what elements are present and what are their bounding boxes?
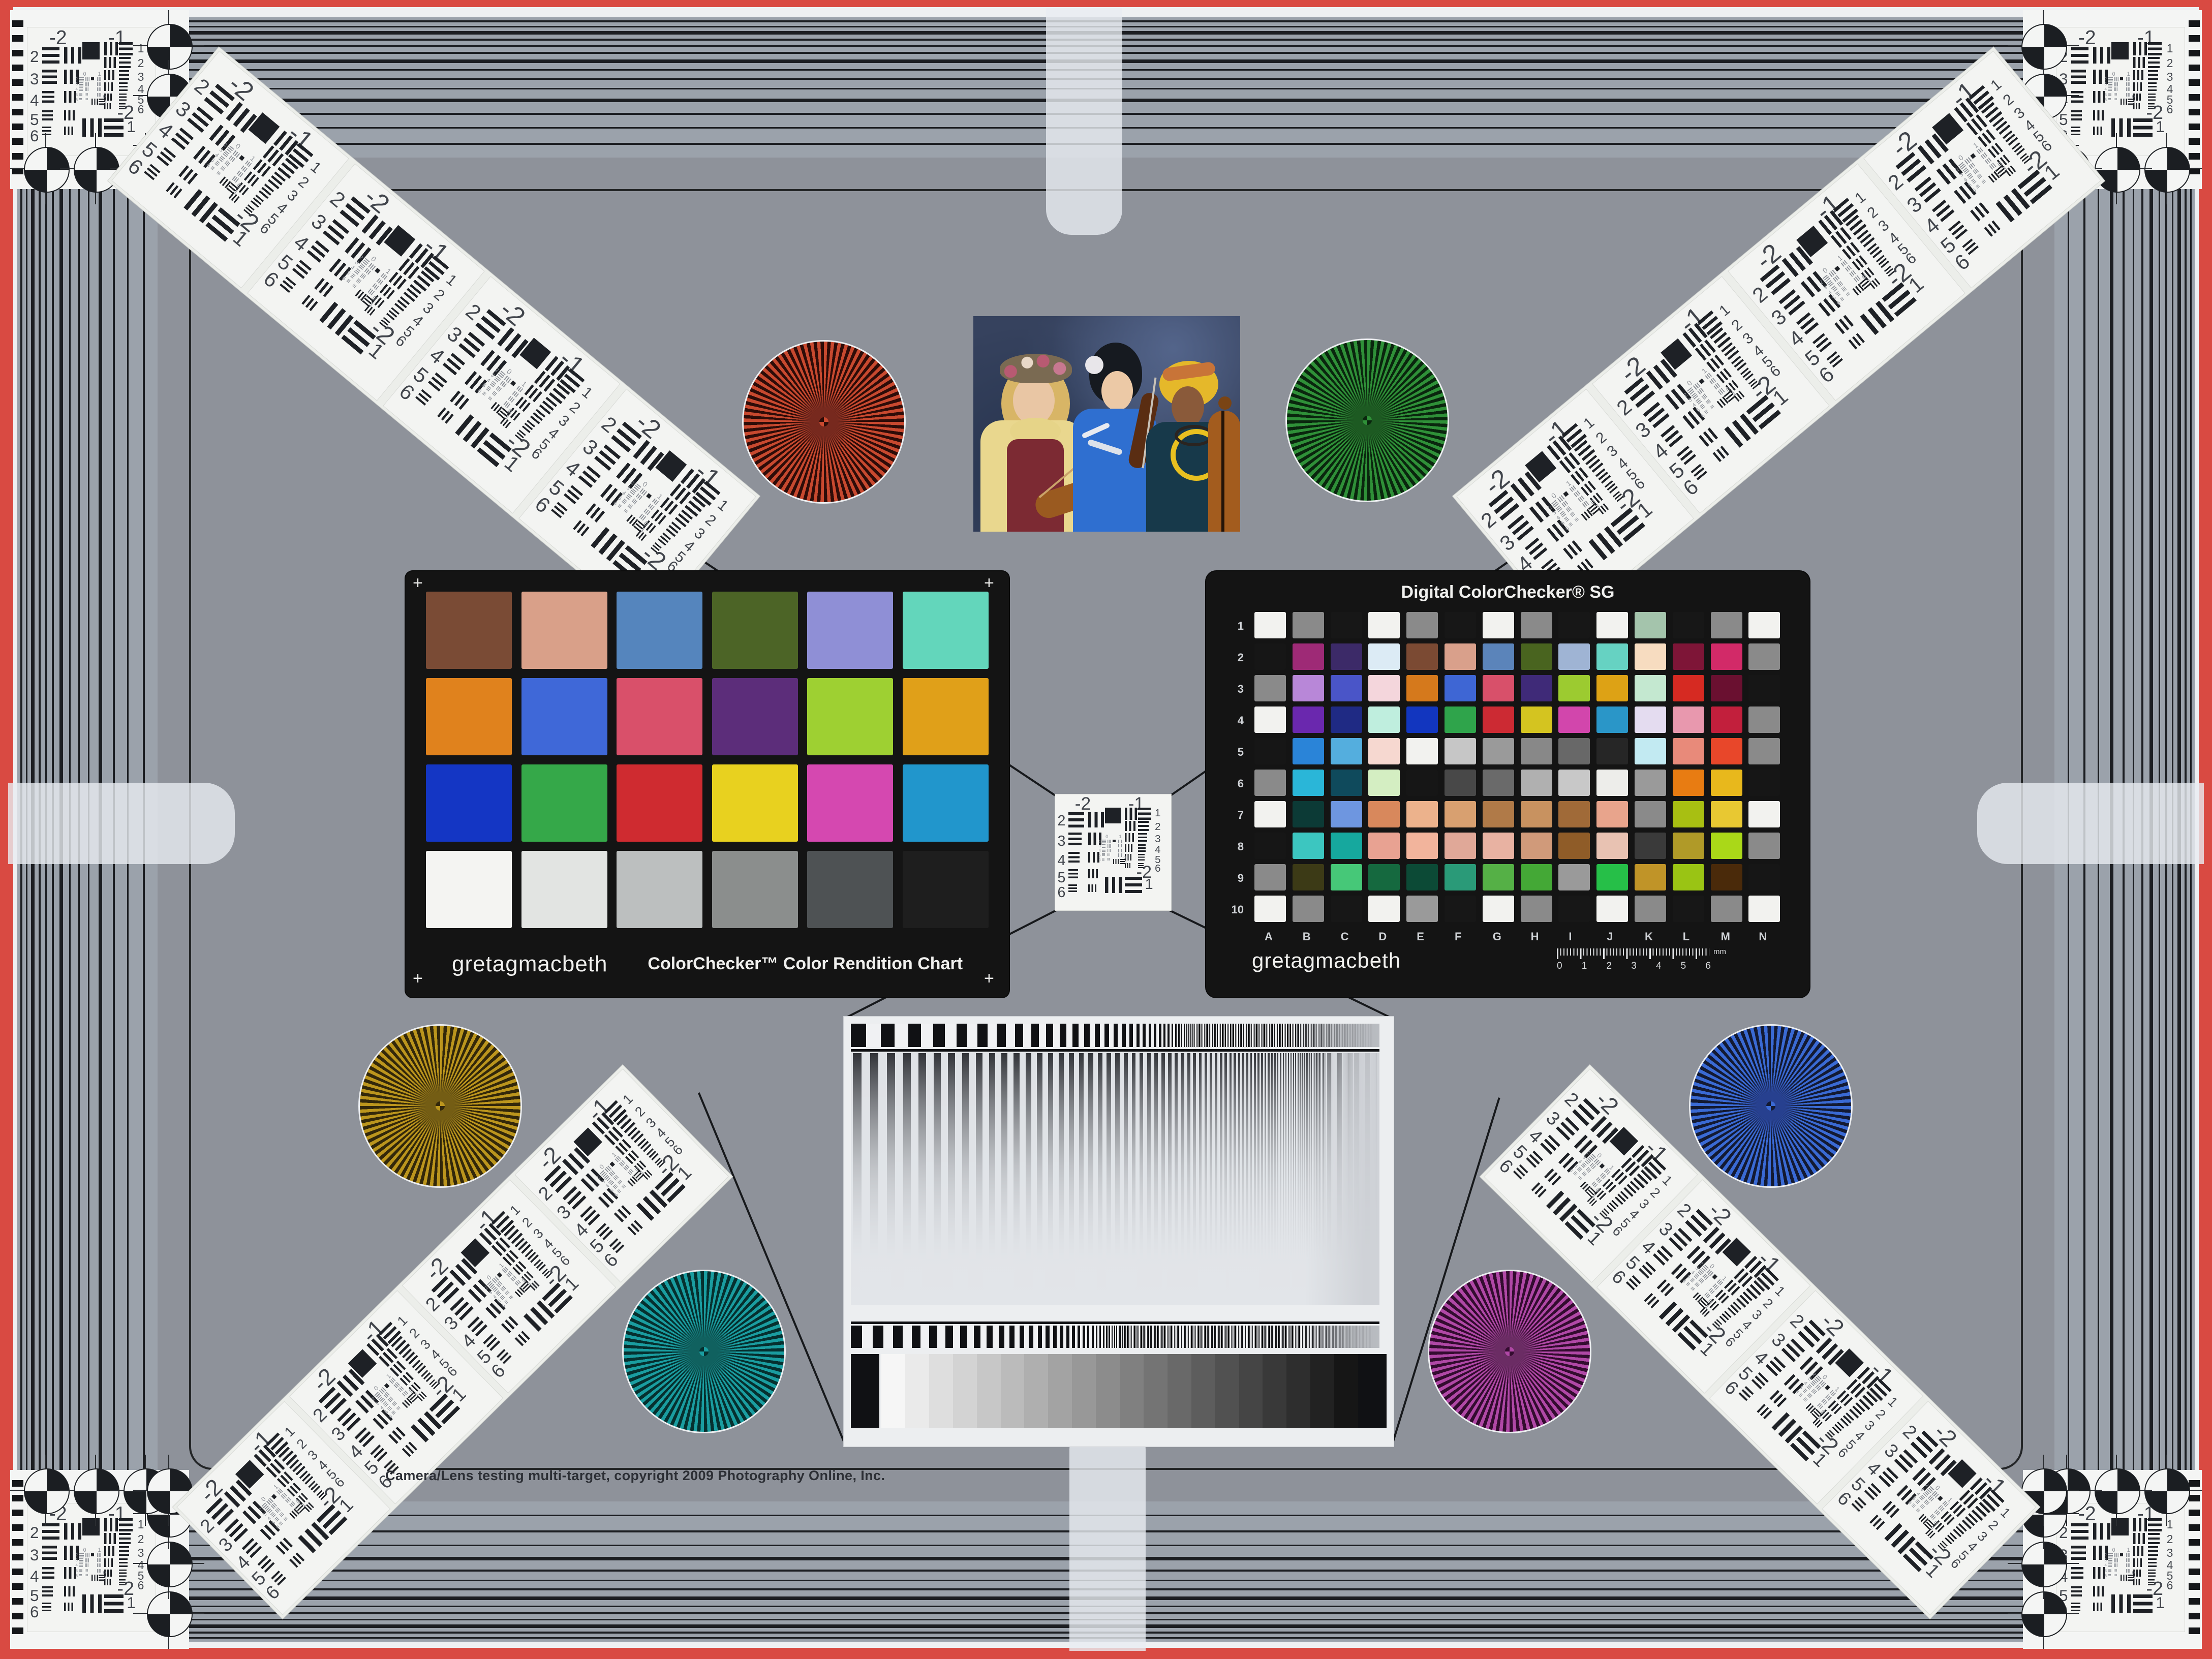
usaf-vbars [1562, 540, 1582, 560]
usaf-micro-vbars [1836, 281, 1842, 287]
color-patch [1445, 612, 1476, 638]
usaf-micro-hbars [1915, 1499, 1920, 1504]
usaf-micro-hbars [1839, 297, 1844, 301]
usaf-vbars [1698, 427, 1717, 447]
usaf-vbars [2121, 1575, 2127, 1581]
color-patch [1521, 738, 1552, 764]
sweep-target-card [844, 1017, 1394, 1447]
usaf-vbars [502, 1250, 518, 1266]
usaf-number: 1 [2133, 100, 2136, 105]
usaf-hbars [2148, 70, 2158, 80]
sweep-bar [1276, 1326, 1277, 1348]
sweep-bar [1170, 1326, 1170, 1348]
usaf-vbars [1558, 1152, 1579, 1173]
sg-row-label: 8 [1221, 840, 1244, 853]
usaf-number: 0 [234, 142, 241, 150]
usaf-micro-hbars [2108, 87, 2112, 91]
usaf-vbars [2111, 118, 2131, 137]
usaf-hbars [483, 1334, 500, 1351]
usaf-micro-square [384, 1383, 389, 1388]
usaf-vbars [660, 497, 678, 515]
color-patch [1445, 864, 1476, 890]
color-patch [1445, 675, 1476, 701]
sweep-bar [1207, 1024, 1208, 1047]
color-patch [1558, 770, 1590, 796]
figure-left-vest [1007, 439, 1064, 532]
sweep-bar [1231, 1326, 1232, 1348]
sweep-bar [1251, 1024, 1252, 1047]
usaf-micro-vbars [2114, 1574, 2116, 1577]
usaf-vbars [573, 520, 589, 536]
color-patch [1254, 864, 1286, 890]
sweep-bar [1263, 1024, 1264, 1047]
sweep-bar [1147, 1326, 1148, 1348]
gray-step [1024, 1354, 1048, 1428]
usaf-vbars [373, 1409, 393, 1429]
usaf-hbars [1138, 808, 1151, 819]
sweep-bar [1181, 1024, 1183, 1047]
usaf-number: 1 [127, 1595, 136, 1611]
sweep-bar [1271, 1024, 1272, 1047]
color-patch [1293, 643, 1324, 670]
usaf-number: 0 [260, 1496, 267, 1503]
usaf-micro-vbars [1821, 1399, 1827, 1405]
usaf-micro-vbars [1570, 512, 1575, 517]
color-patch [1596, 770, 1628, 796]
usaf-vbars [82, 118, 102, 137]
color-patch [1673, 706, 1704, 733]
sweep-bar [1295, 1326, 1296, 1348]
sg-col-label: C [1341, 930, 1349, 943]
usaf-micro-vbars [631, 498, 637, 504]
usaf-number: 3 [218, 147, 224, 153]
sweep-bar [881, 1024, 895, 1047]
usaf-micro-hbars [1695, 398, 1701, 405]
usaf-micro-vbars [1600, 1173, 1606, 1179]
usaf-micro-vbars [279, 1512, 284, 1517]
usaf-micro-vbars [232, 176, 239, 182]
sweep-bar [1205, 1326, 1206, 1348]
quadrant-circle [2021, 1591, 2067, 1637]
sweep-bar [1134, 1326, 1134, 1348]
usaf-number: 2 [519, 1215, 534, 1230]
sweep-divider-bottom [851, 1322, 1379, 1324]
sweep-bar [1268, 1326, 1269, 1348]
sweep-bar [1228, 1326, 1228, 1348]
usaf-number: 1 [2156, 119, 2165, 135]
usaf-number: 6 [1723, 1335, 1737, 1349]
edge-tick-ruler [2189, 1480, 2200, 1639]
usaf-number: 6 [1721, 1377, 1742, 1398]
sweep-bar [1235, 1326, 1236, 1348]
usaf-hbars [258, 183, 274, 199]
usaf-vbars [91, 99, 98, 105]
usaf-number: 3 [76, 1558, 78, 1562]
usaf-number: 4 [1691, 403, 1697, 409]
usaf-number: 5 [2105, 93, 2107, 97]
sweep-bar [1153, 1326, 1153, 1348]
usaf-number: 4 [30, 1569, 39, 1585]
color-patch [1711, 738, 1742, 764]
sweep-bar [1222, 1326, 1223, 1348]
color-patch [1596, 675, 1628, 701]
usaf-micro-hbars [266, 1508, 272, 1514]
usaf-number: 6 [395, 381, 418, 404]
usaf-micro-vbars [623, 1164, 629, 1171]
color-patch [1558, 675, 1590, 701]
usaf-micro-vbars [1968, 163, 1975, 170]
usaf-vbars [1848, 333, 1864, 349]
sweep-bar [1299, 1326, 1300, 1348]
usaf-vbars [1706, 354, 1724, 373]
usaf-number: 5 [1058, 871, 1066, 885]
usaf-vbars [1896, 1485, 1917, 1505]
color-patch [1521, 675, 1552, 701]
sweep-bar [1143, 1326, 1143, 1348]
usaf-hbars [1796, 313, 1819, 335]
usaf-micro-hbars [218, 156, 224, 162]
sweep-bar [1109, 1326, 1110, 1348]
usaf-hbars [539, 396, 557, 415]
usaf-vbars [276, 1471, 293, 1488]
usaf-micro-hbars [1967, 173, 1973, 179]
usaf-number: 1 [1852, 189, 1868, 206]
usaf-vbars [1977, 129, 1995, 147]
usaf-square [82, 1518, 100, 1535]
usaf-vbars [104, 1533, 116, 1544]
usaf-micro-vbars [220, 166, 226, 171]
sweep-bar [1104, 1024, 1109, 1047]
usaf-micro-hbars [1577, 1166, 1582, 1172]
usaf-micro-hbars [1798, 1393, 1802, 1397]
color-patch [807, 851, 893, 928]
usaf-hbars [1513, 1164, 1528, 1179]
usaf-number: 6 [1610, 1224, 1624, 1239]
usaf-number: 5 [2059, 112, 2068, 128]
usaf-hbars [2148, 1558, 2157, 1566]
usaf-number: 6 [2105, 1574, 2107, 1578]
usaf-number: 6 [2105, 98, 2107, 102]
usaf-hbars [42, 91, 54, 103]
usaf-vbars [2133, 70, 2143, 80]
usaf-micro-vbars [85, 87, 88, 91]
color-patch [1521, 864, 1552, 890]
usaf-number: 2 [702, 512, 719, 529]
sweep-bar [1232, 1024, 1233, 1047]
usaf-number: 3 [354, 260, 359, 266]
usaf-vbars [515, 396, 531, 412]
color-patch [903, 678, 989, 755]
sweep-bar [1160, 1326, 1160, 1348]
usaf-micro-hbars [1559, 511, 1565, 517]
usaf-micro-vbars [387, 1396, 393, 1402]
usaf-micro-vbars [1815, 1385, 1821, 1391]
sweep-bar [1207, 1326, 1207, 1348]
usaf-hbars [1540, 1134, 1560, 1155]
usaf-hbars [1781, 1338, 1805, 1362]
sweep-bar [1282, 1024, 1283, 1047]
usaf-number: 2 [2167, 57, 2173, 69]
usaf-micro-vbars [1803, 1397, 1807, 1401]
usaf-micro-hbars [354, 268, 360, 274]
usaf-vbars [402, 1442, 417, 1457]
color-patch [1406, 643, 1438, 670]
usaf-number: 1 [282, 1424, 296, 1439]
usaf-micro-vbars [97, 93, 101, 97]
sweep-bar [1258, 1326, 1258, 1348]
usaf-vbars [613, 1205, 631, 1222]
sg-col-label: D [1378, 930, 1387, 943]
usaf-hbars [665, 521, 681, 537]
green-star [1285, 339, 1449, 502]
usaf-micro-vbars [1980, 152, 1987, 159]
usaf-hbars [1691, 464, 1707, 480]
color-patch [1748, 770, 1780, 796]
usaf-hbars [497, 1349, 511, 1364]
usaf-number: 3 [76, 82, 78, 86]
usaf-vbars [1088, 812, 1104, 827]
usaf-micro-vbars [1108, 858, 1110, 860]
color-patch [1483, 833, 1514, 859]
ruler-number: 3 [1631, 961, 1637, 972]
usaf-micro-hbars [608, 1180, 613, 1185]
usaf-micro-square [609, 1161, 615, 1166]
necklace-beads [1175, 425, 1213, 446]
sg-col-label: H [1531, 930, 1539, 943]
sweep-bar [1159, 1024, 1161, 1047]
usaf-number: 0 [83, 72, 86, 77]
cello-scroll [1218, 396, 1232, 410]
usaf-number: 1 [715, 497, 731, 514]
usaf-number: 3 [2105, 82, 2107, 86]
sweep-bar [1233, 1326, 1233, 1348]
color-patch [521, 678, 607, 755]
usaf-hbars [1856, 229, 1875, 248]
usaf-hbars [394, 296, 410, 312]
usaf-micro-vbars [85, 1563, 88, 1567]
sweep-bar [1277, 1024, 1278, 1047]
sweep-bar [1259, 1024, 1261, 1047]
sweep-bar [1284, 1024, 1285, 1047]
color-patch [1635, 896, 1666, 922]
usaf-micro-vbars [1972, 168, 1978, 174]
usaf-micro-vbars [639, 513, 646, 520]
color-patch [1254, 770, 1286, 796]
camera-test-chart: -2-123456123456-21012345601-2-1234561234… [0, 0, 2212, 1659]
ruler-number: 4 [1656, 961, 1662, 972]
usaf-hbars [187, 106, 213, 133]
usaf-hbars [257, 1555, 274, 1573]
color-patch [1635, 738, 1666, 764]
sweep-bar [1157, 1326, 1157, 1348]
usaf-vbars [329, 259, 351, 281]
usaf-vbars [104, 70, 114, 80]
usaf-micro-vbars [367, 288, 375, 295]
sweep-bar [1119, 1326, 1120, 1348]
usaf-micro-hbars [79, 1569, 82, 1572]
usaf-vbars [82, 1594, 102, 1613]
usaf-micro-vbars [376, 278, 383, 285]
tab-right [1977, 783, 2204, 864]
usaf-micro-square [271, 1494, 276, 1499]
color-patch [1673, 675, 1704, 701]
gray-step [1072, 1354, 1096, 1428]
usaf-hbars [2148, 42, 2162, 55]
sweep-bar [997, 1024, 1006, 1047]
usaf-vbars [2133, 1533, 2145, 1544]
usaf-hbars [143, 164, 160, 180]
usaf-hbars [1864, 1483, 1881, 1500]
usaf-micro-hbars [1971, 178, 1976, 184]
color-patch [1293, 770, 1324, 796]
usaf-micro-vbars [1985, 158, 1992, 164]
color-patch [807, 592, 893, 669]
sweep-bar [1287, 1024, 1288, 1047]
usaf-vbars [64, 1603, 73, 1611]
usaf-vbars [651, 509, 666, 525]
usaf-micro-vbars [360, 273, 366, 279]
sweep-bar [1206, 1024, 1207, 1047]
usaf-number: 4 [1555, 515, 1561, 521]
usaf-vbars [1852, 255, 1867, 271]
sweep-bar [1220, 1024, 1221, 1047]
sweep-bar [1096, 1326, 1098, 1348]
usaf-number: 0 [373, 1385, 380, 1392]
color-patch [1331, 864, 1362, 890]
usaf-number: 5 [76, 93, 78, 97]
sweep-bar [1177, 1326, 1177, 1348]
usaf-vbars [104, 1518, 118, 1531]
usaf-hbars [594, 444, 621, 471]
sg-col-label: M [1721, 930, 1730, 943]
sweep-bar [1240, 1024, 1241, 1047]
copyright-text: Camera/Lens testing multi-target, copyri… [385, 1468, 885, 1484]
color-patch [1368, 643, 1400, 670]
usaf-micro-hbars [2108, 93, 2111, 96]
usaf-number: 5 [2105, 1569, 2107, 1573]
usaf-number: 3 [1687, 397, 1693, 404]
usaf-hbars [119, 1558, 128, 1566]
color-patch [1331, 833, 1362, 859]
sweep-bar [977, 1024, 988, 1047]
sweep-bar [1060, 1024, 1066, 1047]
tab-bottom [1069, 1424, 1146, 1651]
usaf-micro-vbars [1118, 840, 1122, 843]
color-patch [1748, 675, 1780, 701]
usaf-micro-hbars [1810, 1379, 1816, 1386]
sweep-bar [1139, 1326, 1139, 1348]
usaf-micro-vbars [491, 391, 497, 396]
color-patch [1711, 770, 1742, 796]
usaf-vbars [379, 284, 395, 299]
color-patch [1596, 706, 1628, 733]
sweep-bar [1228, 1024, 1230, 1047]
usaf-micro-hbars [1835, 291, 1840, 297]
color-patch [1445, 896, 1476, 922]
usaf-vbars [2133, 57, 2145, 68]
usaf-number: 2 [1729, 317, 1745, 333]
star-center-dot [1505, 1347, 1514, 1356]
sweep-bar [1283, 1326, 1284, 1348]
usaf-micro-vbars [613, 1175, 619, 1180]
usaf-micro-hbars [617, 1189, 621, 1193]
color-patch [1331, 706, 1362, 733]
usaf-vbars [2093, 110, 2104, 120]
usaf-number: 0 [505, 368, 513, 376]
usaf-number: 1 [1155, 808, 1160, 819]
sweep-bar [1212, 1024, 1213, 1047]
usaf-hbars [337, 1407, 361, 1431]
sweep-bar [1286, 1326, 1287, 1348]
sweep-bar [1127, 1326, 1127, 1348]
usaf-hbars [562, 1186, 586, 1210]
sweep-bar [1245, 1326, 1246, 1348]
sg-col-label: L [1683, 930, 1689, 943]
usaf-micro-vbars [281, 1493, 287, 1499]
usaf-number: -2 [2078, 28, 2096, 48]
usaf-micro-vbars [392, 1401, 397, 1406]
usaf-hbars [1068, 852, 1080, 863]
usaf-micro-vbars [363, 268, 371, 275]
usaf-number: 2 [2105, 1553, 2107, 1557]
usaf-number: 1 [1581, 415, 1597, 432]
usaf-hbars [415, 389, 431, 405]
usaf-number: 6 [138, 1580, 144, 1591]
sg-col-label: A [1265, 930, 1273, 943]
usaf-vbars [627, 1220, 642, 1235]
color-patch [1293, 738, 1324, 764]
color-patch [903, 764, 989, 842]
color-patch [426, 764, 512, 842]
sweep-bar [1141, 1326, 1142, 1348]
sweep-bar [1215, 1024, 1216, 1047]
usaf-hbars [1595, 468, 1611, 484]
usaf-number: 1 [138, 43, 144, 54]
color-patch [1254, 612, 1286, 638]
color-patch [1673, 738, 1704, 764]
quadrant-circle [74, 147, 119, 193]
usaf-hbars [1623, 1181, 1639, 1197]
usaf-hbars [1138, 833, 1147, 842]
sweep-bar [1278, 1326, 1278, 1348]
usaf-number: 5 [1099, 853, 1101, 857]
corner-target-assembly: -2-123456123456-21012345601 [10, 1470, 189, 1649]
usaf-micro-vbars [635, 493, 642, 500]
color-patch [1254, 738, 1286, 764]
usaf-hbars [1878, 1467, 1898, 1487]
color-patch [1331, 612, 1362, 638]
usaf-number: 1 [1119, 835, 1121, 840]
color-patch [1673, 896, 1704, 922]
usaf-vbars [1570, 467, 1588, 485]
usaf-micro-hbars [222, 150, 229, 158]
usaf-micro-vbars [1977, 174, 1982, 179]
usaf-number: 6 [392, 333, 409, 350]
color-patch [903, 851, 989, 928]
usaf-vbars [1580, 480, 1596, 496]
sweep-bar [1288, 1024, 1289, 1047]
color-patch [1558, 643, 1590, 670]
usaf-vbars [388, 1427, 406, 1444]
usaf-number: 1 [2127, 72, 2130, 77]
usaf-hbars [1507, 514, 1533, 541]
color-patch [1406, 675, 1438, 701]
usaf-hbars [2071, 70, 2086, 83]
usaf-vbars [1125, 844, 1132, 852]
sweep-bar [1188, 1024, 1189, 1047]
usaf-hbars [1721, 342, 1739, 360]
usaf-number: 1 [2156, 1595, 2165, 1611]
